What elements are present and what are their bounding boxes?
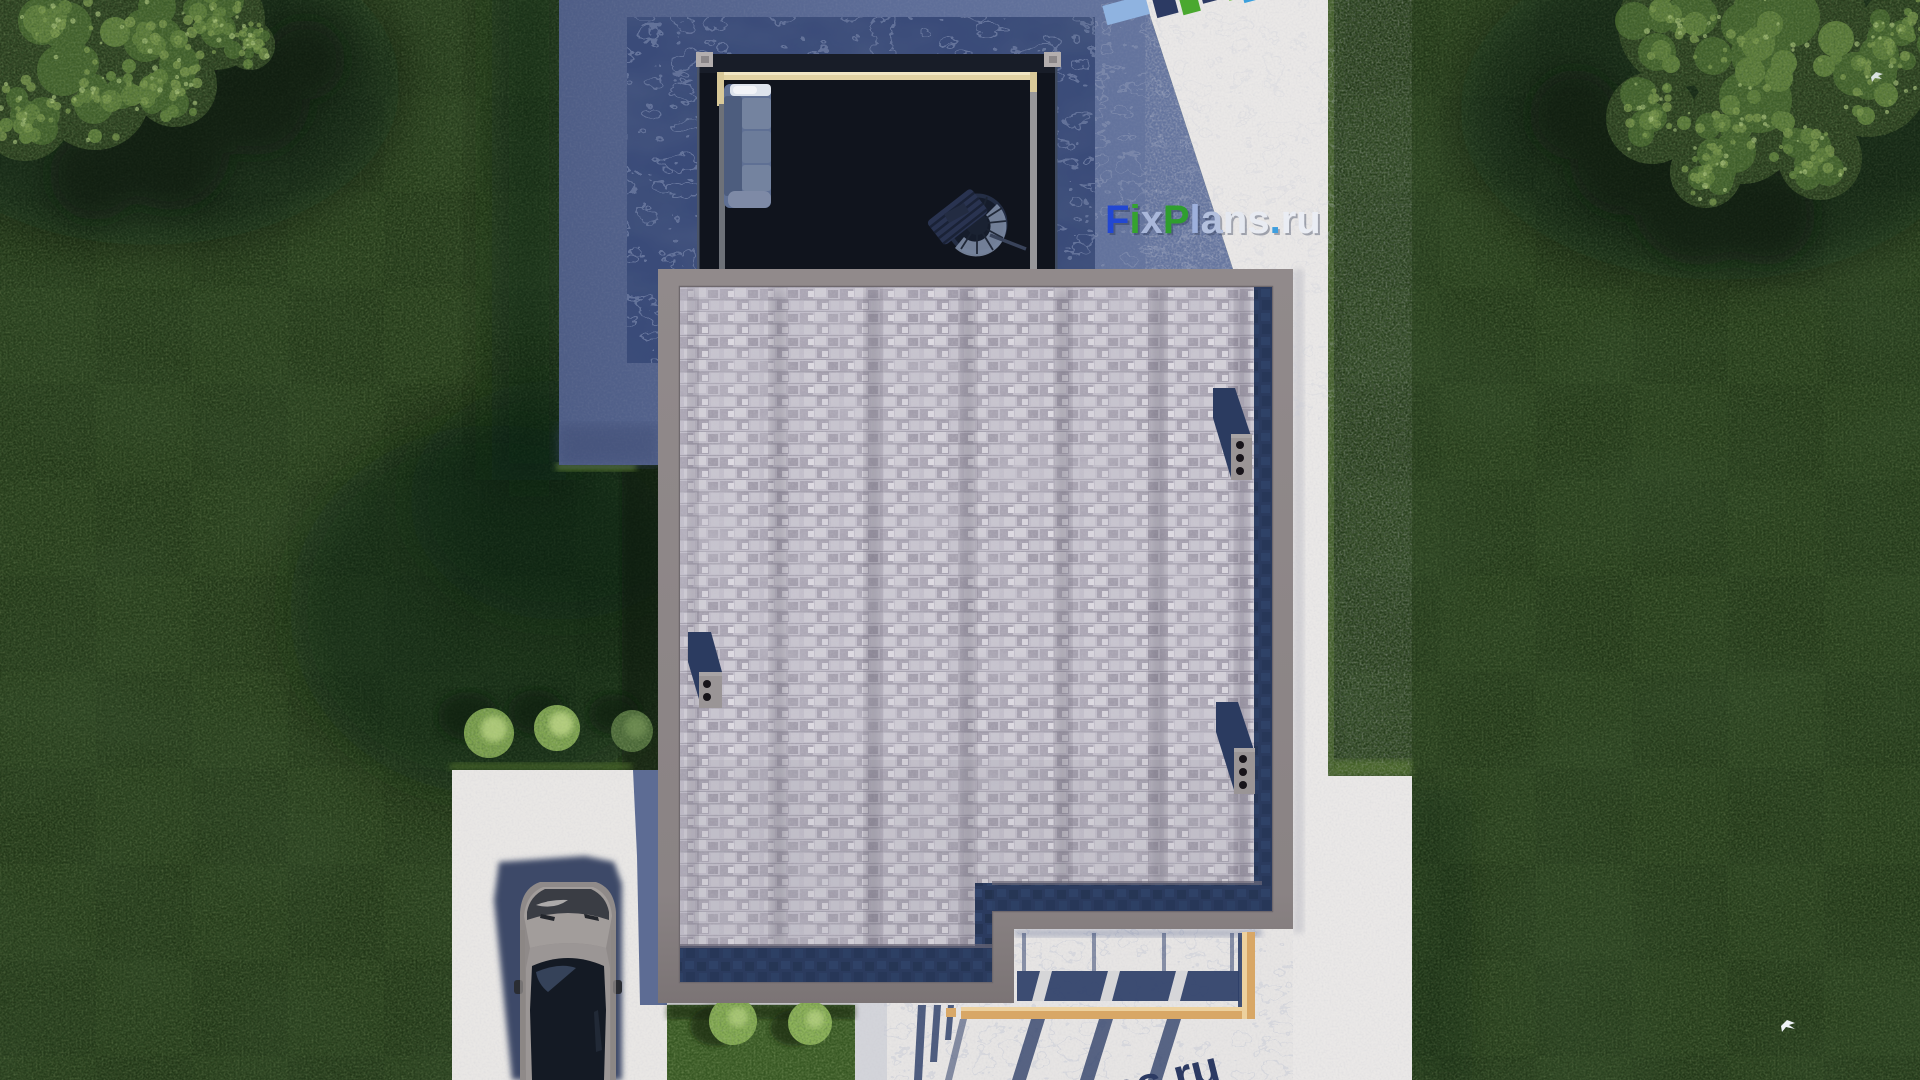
svg-text:FixPlans.ru: FixPlans.ru bbox=[1105, 198, 1321, 242]
